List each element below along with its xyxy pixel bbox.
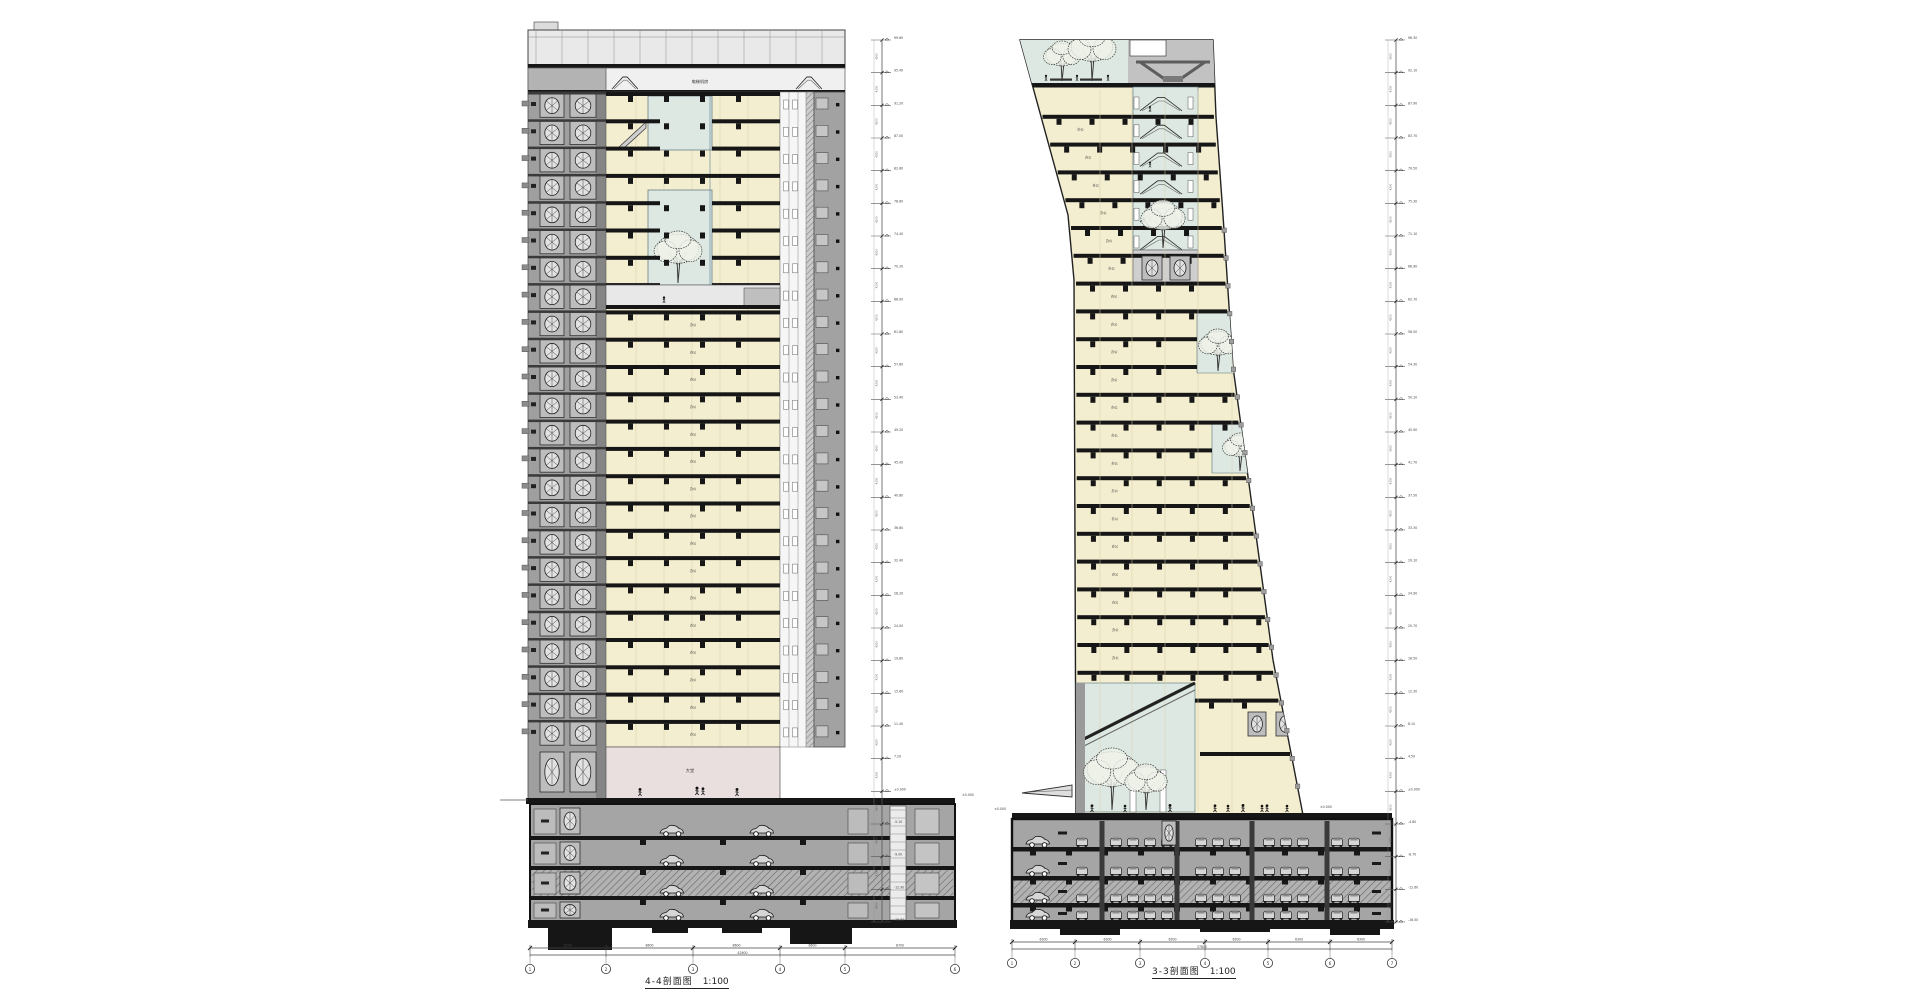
svg-text:4200: 4200 (1389, 347, 1393, 354)
svg-text:办公: 办公 (690, 650, 697, 655)
architectural-sheet: 电梯机房办公办公办公办公办公办公办公办公办公办公办公办公办公办公办公办公大堂±0… (0, 0, 1920, 1000)
svg-text:办公: 办公 (690, 404, 697, 409)
svg-text:电梯机房: 电梯机房 (692, 78, 709, 85)
svg-text:6300: 6300 (1295, 938, 1303, 942)
right-elevation-ruler: 96.3092.10420087.90420083.70420079.50420… (1385, 36, 1420, 924)
svg-text:6300: 6300 (1357, 938, 1365, 942)
svg-text:4200: 4200 (1389, 281, 1393, 288)
svg-text:办公: 办公 (1093, 182, 1100, 187)
svg-text:3: 3 (692, 967, 695, 972)
svg-text:办公: 办公 (1111, 460, 1118, 465)
svg-text:24.90: 24.90 (1408, 591, 1417, 595)
svg-text:92.10: 92.10 (1408, 69, 1417, 73)
svg-text:4.50: 4.50 (1408, 755, 1415, 759)
svg-text:办公: 办公 (690, 677, 697, 682)
svg-text:办公: 办公 (1111, 294, 1118, 299)
left-title-scale: 1:100 (703, 977, 729, 987)
svg-text:办公: 办公 (1100, 210, 1107, 215)
svg-text:4200: 4200 (1389, 641, 1393, 648)
svg-text:12.30: 12.30 (1408, 689, 1417, 693)
svg-text:4200: 4200 (875, 837, 879, 844)
svg-text:办公: 办公 (690, 595, 697, 600)
svg-text:66.00: 66.00 (894, 297, 903, 301)
svg-text:4200: 4200 (875, 445, 879, 452)
svg-text:办公: 办公 (690, 622, 697, 627)
svg-text:办公: 办公 (1111, 433, 1118, 438)
svg-text:±0.000: ±0.000 (994, 807, 1006, 811)
svg-text:87.00: 87.00 (894, 134, 903, 138)
svg-text:1: 1 (529, 967, 532, 972)
svg-text:8600: 8600 (645, 944, 653, 948)
svg-text:7.20: 7.20 (894, 755, 901, 759)
svg-text:29.10: 29.10 (1408, 559, 1417, 563)
svg-text:70.20: 70.20 (894, 265, 903, 269)
svg-text:办公: 办公 (1111, 405, 1118, 410)
svg-text:4200: 4200 (1389, 53, 1393, 60)
svg-text:58.50: 58.50 (1408, 330, 1417, 334)
svg-text:办公: 办公 (1111, 349, 1118, 354)
svg-text:4200: 4200 (1389, 804, 1393, 811)
svg-text:4200: 4200 (875, 347, 879, 354)
svg-text:办公: 办公 (690, 431, 697, 436)
svg-text:96.30: 96.30 (1408, 36, 1417, 40)
svg-text:-8.70: -8.70 (1408, 853, 1416, 857)
svg-text:8700: 8700 (896, 944, 904, 948)
svg-text:4200: 4200 (875, 281, 879, 288)
svg-text:71.10: 71.10 (1408, 232, 1417, 236)
svg-text:4200: 4200 (875, 412, 879, 419)
right-drawing-title: 3-3剖面图1:100 (1152, 964, 1236, 979)
svg-text:6: 6 (954, 967, 957, 972)
svg-text:办公: 办公 (1112, 599, 1119, 604)
svg-text:4200: 4200 (875, 53, 879, 60)
svg-text:16.50: 16.50 (1408, 657, 1417, 661)
svg-text:4200: 4200 (875, 673, 879, 680)
svg-text:53.40: 53.40 (894, 395, 903, 399)
svg-text:-12.90: -12.90 (894, 885, 904, 889)
svg-text:办公: 办公 (690, 377, 697, 382)
svg-text:4200: 4200 (1389, 608, 1393, 615)
svg-text:8600: 8600 (732, 944, 740, 948)
svg-text:99.60: 99.60 (894, 36, 903, 40)
svg-text:8.10: 8.10 (1408, 722, 1415, 726)
svg-text:4200: 4200 (1389, 379, 1393, 386)
svg-text:6: 6 (1329, 961, 1332, 966)
svg-text:82.80: 82.80 (894, 167, 903, 171)
svg-text:4200: 4200 (875, 543, 879, 550)
svg-text:4200: 4200 (1389, 445, 1393, 452)
svg-text:大堂: 大堂 (686, 767, 694, 774)
svg-text:4200: 4200 (1389, 249, 1393, 256)
svg-text:3: 3 (1139, 961, 1142, 966)
svg-text:75.30: 75.30 (1408, 199, 1417, 203)
svg-text:4200: 4200 (875, 771, 879, 778)
svg-text:办公: 办公 (690, 704, 697, 709)
svg-text:4200: 4200 (1389, 771, 1393, 778)
svg-text:36.60: 36.60 (894, 526, 903, 530)
svg-text:19.80: 19.80 (894, 657, 903, 661)
svg-text:7: 7 (1391, 961, 1394, 966)
svg-text:4200: 4200 (1389, 575, 1393, 582)
svg-text:办公: 办公 (690, 568, 697, 573)
svg-text:办公: 办公 (1111, 321, 1118, 326)
svg-text:5: 5 (1267, 961, 1270, 966)
svg-text:4200: 4200 (875, 183, 879, 190)
svg-text:办公: 办公 (1111, 377, 1118, 382)
svg-text:4200: 4200 (875, 379, 879, 386)
svg-text:办公: 办公 (1106, 238, 1113, 243)
svg-text:11.40: 11.40 (894, 722, 903, 726)
svg-text:45.00: 45.00 (894, 461, 903, 465)
svg-text:±0.000: ±0.000 (1320, 805, 1332, 809)
svg-text:4200: 4200 (875, 477, 879, 484)
svg-text:54.30: 54.30 (1408, 363, 1417, 367)
svg-text:4200: 4200 (875, 216, 879, 223)
svg-text:办公: 办公 (1077, 127, 1084, 132)
svg-text:4200: 4200 (875, 869, 879, 876)
svg-text:办公: 办公 (1085, 155, 1092, 160)
svg-text:57.60: 57.60 (894, 363, 903, 367)
svg-text:6300: 6300 (1232, 938, 1240, 942)
svg-text:办公: 办公 (690, 732, 697, 737)
svg-text:49.20: 49.20 (894, 428, 903, 432)
svg-text:办公: 办公 (690, 459, 697, 464)
svg-text:4200: 4200 (1389, 183, 1393, 190)
svg-text:50.10: 50.10 (1408, 395, 1417, 399)
svg-text:6300: 6300 (1103, 938, 1111, 942)
svg-text:66.90: 66.90 (1408, 265, 1417, 269)
svg-text:4200: 4200 (1389, 673, 1393, 680)
svg-text:4200: 4200 (1389, 510, 1393, 517)
left-elevation-ruler: 99.6095.40420091.20420087.00420082.80420… (871, 36, 906, 924)
section-canvas: 电梯机房办公办公办公办公办公办公办公办公办公办公办公办公办公办公办公办公大堂±0… (0, 0, 1920, 1000)
svg-text:41.70: 41.70 (1408, 461, 1417, 465)
svg-text:4200: 4200 (875, 902, 879, 909)
svg-text:办公: 办公 (690, 322, 697, 327)
svg-text:-5.10: -5.10 (894, 820, 902, 824)
svg-text:1: 1 (1011, 961, 1014, 966)
svg-text:78.60: 78.60 (894, 199, 903, 203)
svg-text:37800: 37800 (1197, 945, 1207, 949)
svg-text:4200: 4200 (1389, 151, 1393, 158)
svg-text:办公: 办公 (690, 349, 697, 354)
svg-text:-12.60: -12.60 (1408, 885, 1418, 889)
svg-text:4200: 4200 (1389, 477, 1393, 484)
svg-text:4200: 4200 (875, 85, 879, 92)
svg-text:4200: 4200 (1389, 412, 1393, 419)
svg-text:4200: 4200 (1389, 543, 1393, 550)
svg-text:79.50: 79.50 (1408, 167, 1417, 171)
svg-text:-16.80: -16.80 (894, 918, 904, 922)
svg-text:6300: 6300 (1168, 938, 1176, 942)
svg-text:4200: 4200 (875, 510, 879, 517)
svg-text:4200: 4200 (1389, 837, 1393, 844)
svg-text:91.20: 91.20 (894, 101, 903, 105)
svg-text:4200: 4200 (875, 641, 879, 648)
svg-text:4200: 4200 (875, 151, 879, 158)
svg-text:办公: 办公 (1112, 544, 1119, 549)
svg-text:-9.00: -9.00 (894, 853, 902, 857)
svg-text:74.40: 74.40 (894, 232, 903, 236)
svg-text:-16.50: -16.50 (1408, 918, 1418, 922)
svg-text:-4.80: -4.80 (1408, 820, 1416, 824)
svg-text:4200: 4200 (1389, 118, 1393, 125)
svg-text:87.90: 87.90 (1408, 101, 1417, 105)
svg-text:4200: 4200 (875, 804, 879, 811)
svg-text:4200: 4200 (1389, 314, 1393, 321)
svg-text:2: 2 (605, 967, 608, 972)
svg-text:6300: 6300 (1039, 938, 1047, 942)
svg-text:2: 2 (1074, 961, 1077, 966)
svg-text:±0.000: ±0.000 (894, 787, 906, 791)
svg-text:办公: 办公 (690, 486, 697, 491)
svg-text:办公: 办公 (1112, 655, 1119, 660)
svg-text:办公: 办公 (1112, 627, 1119, 632)
svg-text:办公: 办公 (1112, 516, 1119, 521)
svg-text:24.00: 24.00 (894, 624, 903, 628)
svg-text:4200: 4200 (1389, 706, 1393, 713)
svg-text:±0.000: ±0.000 (1408, 787, 1420, 791)
svg-text:20.70: 20.70 (1408, 624, 1417, 628)
svg-text:4200: 4200 (1389, 85, 1393, 92)
left-title-text: 4-4剖面图 (645, 977, 693, 987)
svg-text:4200: 4200 (875, 608, 879, 615)
svg-text:32.40: 32.40 (894, 559, 903, 563)
svg-text:±0.000: ±0.000 (962, 793, 974, 797)
svg-text:4200: 4200 (875, 575, 879, 582)
svg-text:40.80: 40.80 (894, 493, 903, 497)
svg-text:办公: 办公 (1108, 266, 1115, 271)
svg-text:33.30: 33.30 (1408, 526, 1417, 530)
right-title-scale: 1:100 (1210, 967, 1236, 977)
svg-text:4200: 4200 (875, 739, 879, 746)
svg-text:办公: 办公 (690, 513, 697, 518)
svg-text:办公: 办公 (690, 540, 697, 545)
svg-text:4200: 4200 (1389, 216, 1393, 223)
svg-text:5: 5 (844, 967, 847, 972)
svg-text:办公: 办公 (1112, 488, 1119, 493)
svg-text:8100: 8100 (564, 944, 572, 948)
svg-text:15.60: 15.60 (894, 689, 903, 693)
right-section-drawing: 办公办公办公办公办公办公办公办公办公办公办公办公办公办公办公办公办公办公办公办公… (994, 29, 1396, 968)
svg-text:办公: 办公 (1112, 572, 1119, 577)
svg-text:28.20: 28.20 (894, 591, 903, 595)
svg-text:95.40: 95.40 (894, 69, 903, 73)
svg-text:4200: 4200 (1389, 902, 1393, 909)
svg-text:45.90: 45.90 (1408, 428, 1417, 432)
svg-text:8600: 8600 (808, 944, 816, 948)
svg-text:37.50: 37.50 (1408, 493, 1417, 497)
svg-text:4200: 4200 (875, 314, 879, 321)
left-drawing-title: 4-4剖面图1:100 (645, 974, 729, 989)
left-section-drawing: 电梯机房办公办公办公办公办公办公办公办公办公办公办公办公办公办公办公办公大堂±0… (500, 22, 974, 974)
svg-text:42600: 42600 (737, 951, 747, 955)
svg-text:4200: 4200 (875, 249, 879, 256)
svg-text:83.70: 83.70 (1408, 134, 1417, 138)
svg-text:4: 4 (779, 967, 782, 972)
svg-text:61.80: 61.80 (894, 330, 903, 334)
svg-text:4200: 4200 (875, 706, 879, 713)
svg-text:4200: 4200 (1389, 869, 1393, 876)
svg-text:62.70: 62.70 (1408, 297, 1417, 301)
svg-text:4200: 4200 (875, 118, 879, 125)
right-title-text: 3-3剖面图 (1152, 967, 1200, 977)
svg-text:4200: 4200 (1389, 739, 1393, 746)
